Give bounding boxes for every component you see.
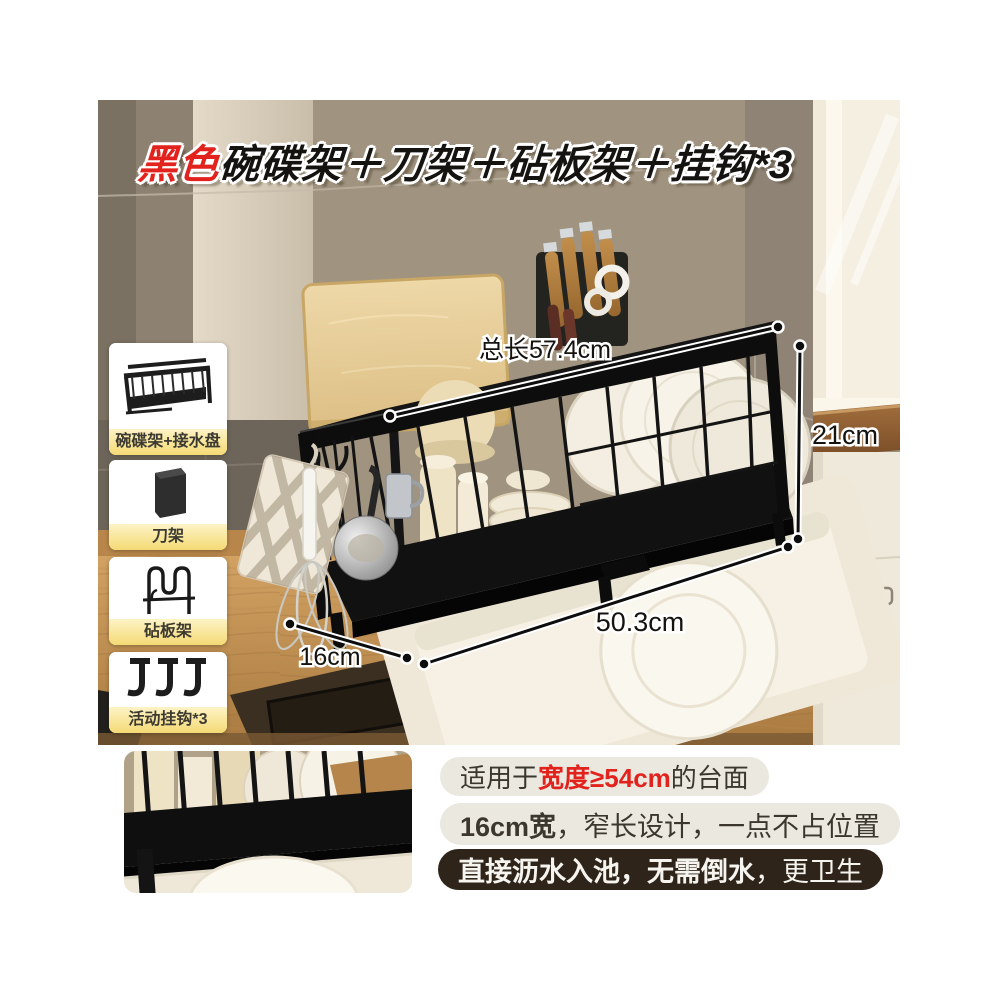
- title-color-word: 黑色: [136, 143, 221, 187]
- thumb-label: 砧板架: [109, 619, 227, 645]
- basket-icon: [116, 353, 220, 419]
- dim-inner-length: 50.3cm: [596, 607, 685, 637]
- closeup-photo: [124, 751, 412, 893]
- closeup-scene: [124, 751, 412, 893]
- note-bold: 16cm宽: [460, 805, 556, 844]
- dish-rack-thumb: [109, 343, 227, 429]
- board-rack-icon: [133, 560, 203, 616]
- thumb-card-knife-rack: 刀架: [109, 460, 227, 550]
- thumb-label: 碗碟架+接水盘: [109, 429, 227, 455]
- thumb-label: 活动挂钩*3: [109, 707, 227, 733]
- thumb-card-board-rack: 砧板架: [109, 557, 227, 645]
- thumb-card-hooks: 活动挂钩*3: [109, 652, 227, 733]
- page-title: 黑色碗碟架＋刀架＋砧板架＋挂钩*3: [136, 132, 795, 190]
- product-detail-image: 总长57.4cm 21cm 50.3cm 16cm 黑色碗碟架＋刀架＋砧板架＋挂…: [0, 0, 1000, 1000]
- board-rack-thumb: [109, 557, 227, 619]
- thumb-label: 刀架: [109, 524, 227, 550]
- dim-height: 21cm: [812, 420, 878, 450]
- note-narrow-design: 16cm宽，窄长设计，一点不占位置: [440, 803, 900, 845]
- note-countertop-width: 适用于宽度≥54cm的台面: [440, 757, 769, 796]
- title-rest: 碗碟架＋刀架＋砧板架＋挂钩*3: [218, 143, 794, 187]
- note-drain-direct: 直接沥水入池，无需倒水，更卫生: [438, 849, 883, 890]
- note-pre: 适用于: [460, 758, 538, 795]
- note-bold: 直接沥水入池，无需倒水: [458, 850, 755, 889]
- note-highlight: 宽度≥54cm: [538, 758, 671, 795]
- dim-depth: 16cm: [299, 643, 360, 671]
- dim-total-length: 总长57.4cm: [479, 336, 611, 364]
- note-post: ，更卫生: [755, 850, 863, 889]
- note-post: ，窄长设计，一点不占位置: [556, 805, 880, 844]
- hooks-icon: [125, 655, 211, 705]
- knife-holder-icon: [133, 463, 203, 521]
- hooks-thumb: [109, 652, 227, 707]
- knife-rack-thumb: [109, 460, 227, 524]
- note-post: 的台面: [671, 758, 749, 795]
- thumb-card-dish-rack: 碗碟架+接水盘: [109, 343, 227, 455]
